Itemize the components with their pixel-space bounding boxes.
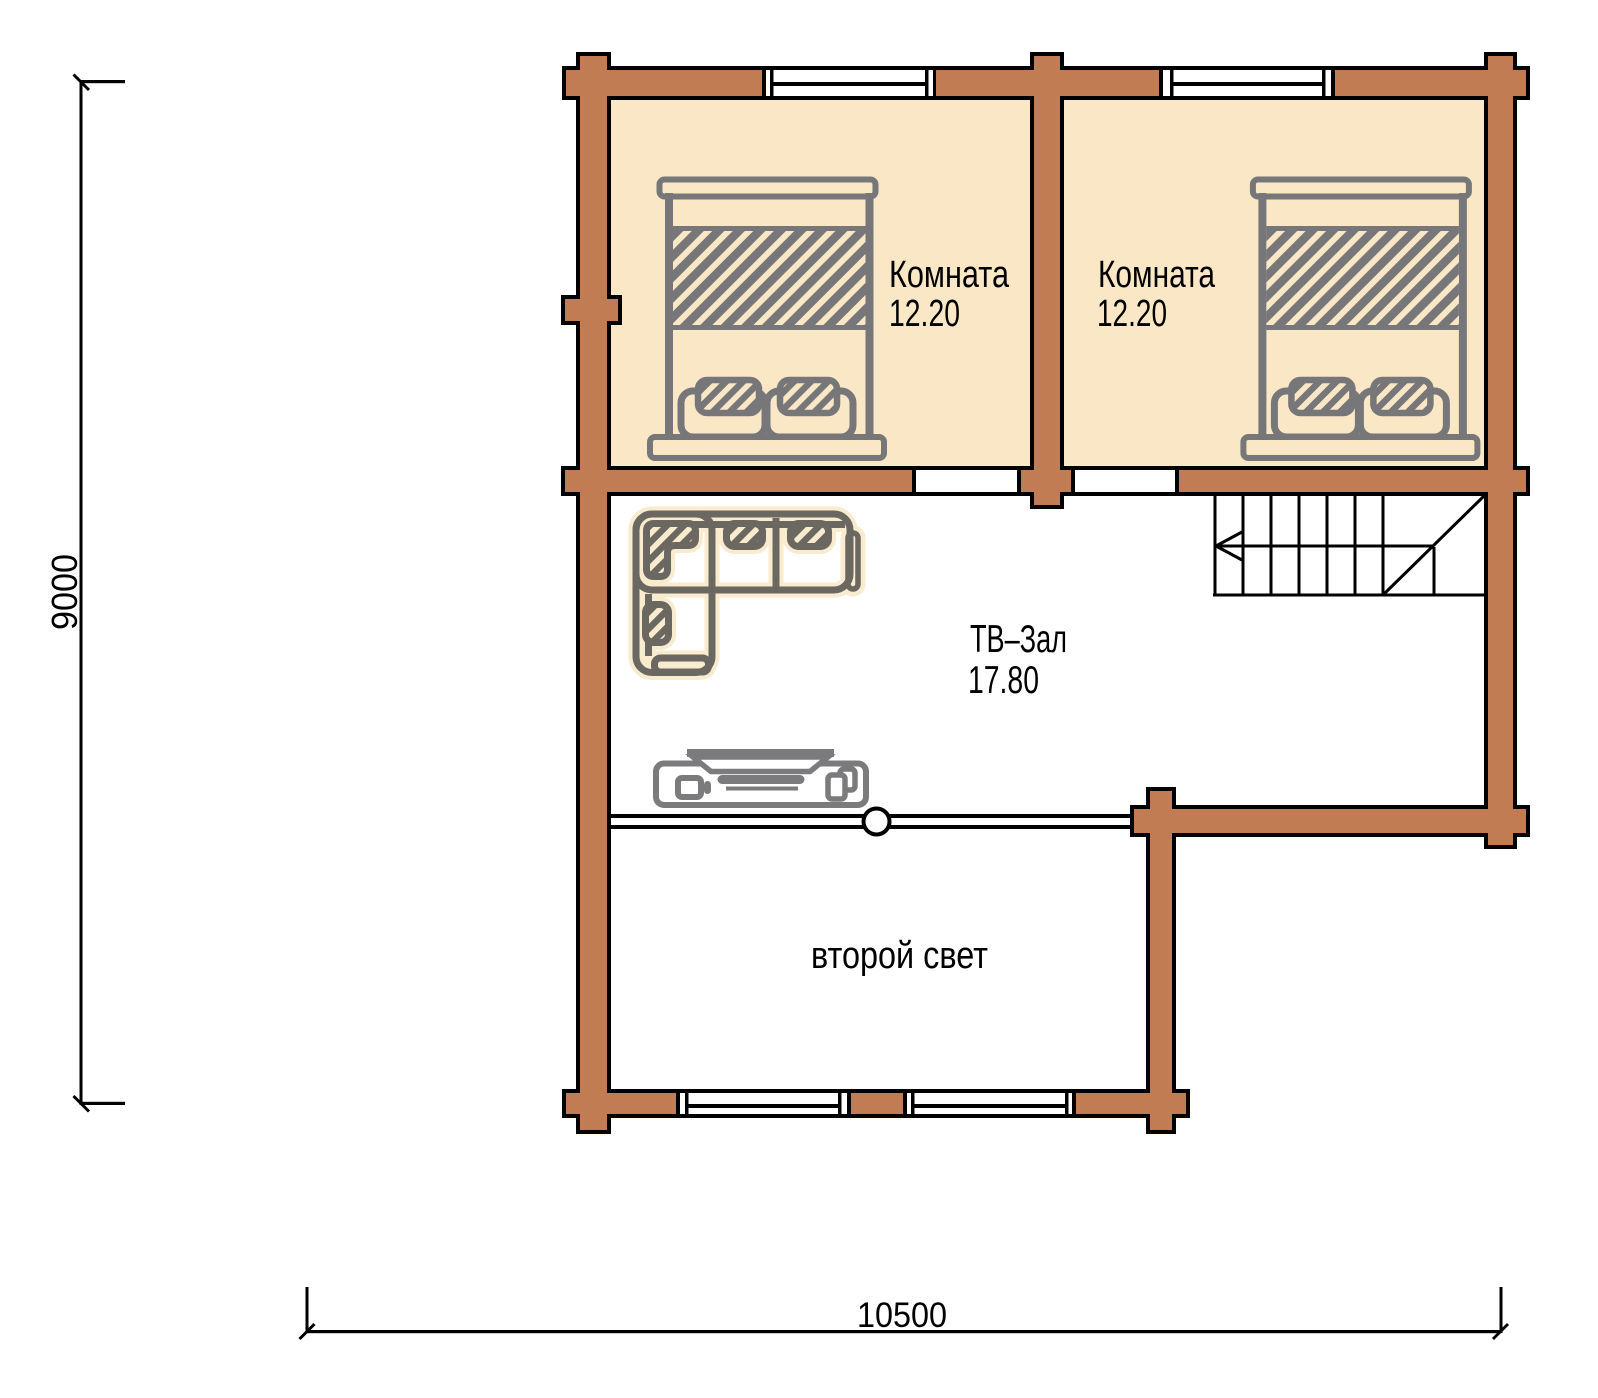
svg-text:9000: 9000 — [44, 554, 85, 630]
svg-text:ТВ–Зал: ТВ–Зал — [970, 618, 1067, 661]
svg-text:второй свет: второй свет — [811, 935, 988, 977]
svg-text:12.20: 12.20 — [1097, 293, 1167, 335]
svg-text:Комната: Комната — [889, 254, 1010, 296]
svg-text:12.20: 12.20 — [889, 293, 960, 335]
svg-text:Комната: Комната — [1098, 254, 1216, 296]
svg-text:17.80: 17.80 — [968, 659, 1039, 702]
svg-text:10500: 10500 — [857, 1296, 947, 1335]
